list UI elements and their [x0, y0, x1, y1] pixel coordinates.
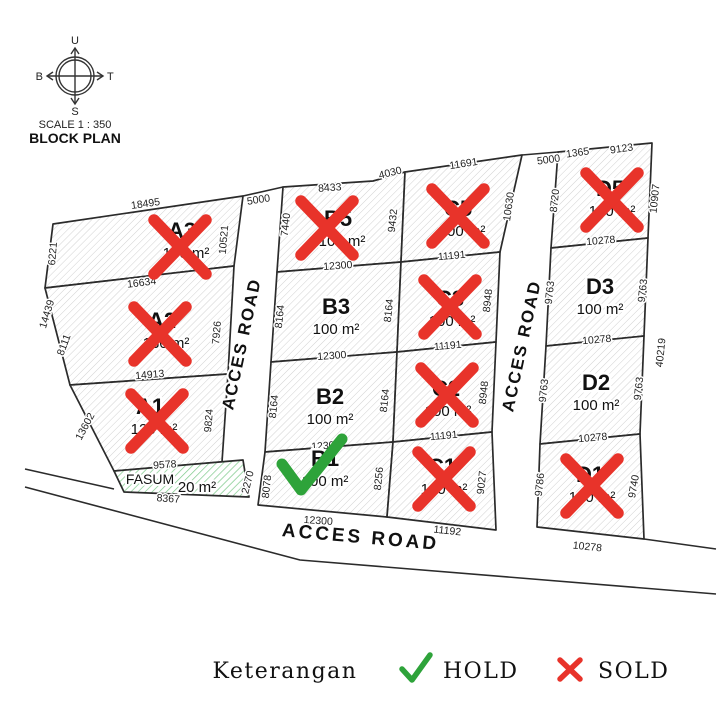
plot-label-D2: D2	[582, 370, 610, 395]
dimension-label: 9578	[153, 458, 177, 472]
dimension-label: 11191	[437, 249, 466, 263]
compass-north-label: U	[71, 35, 79, 47]
dimension-label: 8256	[372, 466, 386, 491]
plan-title: BLOCK PLAN	[29, 130, 121, 146]
hold-check-icon	[402, 655, 430, 680]
dimension-label: 8078	[260, 474, 274, 499]
plot-label-FASUM: FASUM	[126, 471, 174, 487]
dimension-label: 8164	[378, 388, 392, 413]
dimension-label: 8164	[267, 394, 281, 419]
dimension-label: 7440	[279, 212, 293, 237]
dimension-label: 8367	[156, 492, 180, 506]
dimension-label: 9763	[537, 378, 551, 403]
dimension-label: 8164	[273, 304, 287, 329]
dimension-label: 40219	[654, 337, 669, 367]
dimension-label: 12300	[323, 259, 353, 273]
compass-rose: U T S B SCALE 1 : 350 BLOCK PLAN	[29, 35, 121, 146]
dimension-label: 11191	[433, 339, 462, 353]
compass-south-label: S	[71, 106, 78, 118]
plot-area-FASUM: 20 m²	[178, 479, 216, 496]
legend-hold-label: HOLD	[443, 659, 518, 684]
dimension-label: 14913	[135, 368, 165, 383]
dimension-label: 12300	[317, 349, 347, 363]
dimension-label: 11191	[429, 429, 458, 443]
dimension-label: 10278	[582, 333, 612, 348]
boundary-line	[644, 539, 716, 549]
dimension-label: 8164	[382, 298, 396, 323]
plot-area-D3: 100 m²	[577, 301, 624, 318]
dimension-label: 8433	[318, 181, 342, 195]
dimension-label: 10278	[572, 540, 602, 555]
dimension-label: 6221	[46, 241, 60, 265]
block-plan-svg: U T S B SCALE 1 : 350 BLOCK PLAN 1849562…	[0, 0, 720, 720]
dimension-label: 8948	[477, 380, 491, 405]
dimension-label: 9432	[386, 208, 400, 233]
dimension-label: 9763	[543, 280, 557, 305]
dimension-label: 5000	[246, 192, 271, 208]
legend: Keterangan HOLD SOLD	[213, 655, 670, 684]
dimension-label: 9763	[636, 278, 650, 303]
plot-area-D2: 100 m²	[573, 397, 620, 414]
sold-x-icon	[560, 660, 580, 679]
road-label: ACCES ROAD	[281, 520, 440, 555]
dimension-label: 9824	[202, 408, 216, 432]
legend-title: Keterangan	[213, 659, 358, 684]
plot-label-D3: D3	[586, 274, 614, 299]
plan-drawing: 1849562211052116634144398111792614913136…	[25, 141, 716, 594]
plot-area-B3: 100 m²	[313, 321, 360, 338]
dimension-label: 8720	[548, 188, 562, 213]
compass-west-label: B	[36, 71, 43, 83]
block-plan-canvas: U T S B SCALE 1 : 350 BLOCK PLAN 1849562…	[0, 0, 720, 720]
dimension-label: 9027	[475, 470, 489, 495]
plot-label-B3: B3	[322, 294, 350, 319]
dimension-label: 9786	[533, 472, 547, 497]
dimension-label: 10521	[217, 225, 232, 255]
compass-east-label: T	[107, 71, 114, 83]
dimension-label: 10278	[586, 234, 616, 249]
dimension-label: 8948	[481, 288, 495, 313]
dimension-label: 10907	[648, 183, 663, 213]
dimension-label: 10278	[578, 431, 608, 446]
boundary-line	[25, 469, 114, 489]
dimension-label: 9763	[632, 376, 646, 401]
legend-sold-label: SOLD	[598, 659, 669, 684]
dimension-label: 7926	[210, 320, 224, 344]
plot-area-B2: 100 m²	[307, 411, 354, 428]
plot-label-B2: B2	[316, 384, 344, 409]
